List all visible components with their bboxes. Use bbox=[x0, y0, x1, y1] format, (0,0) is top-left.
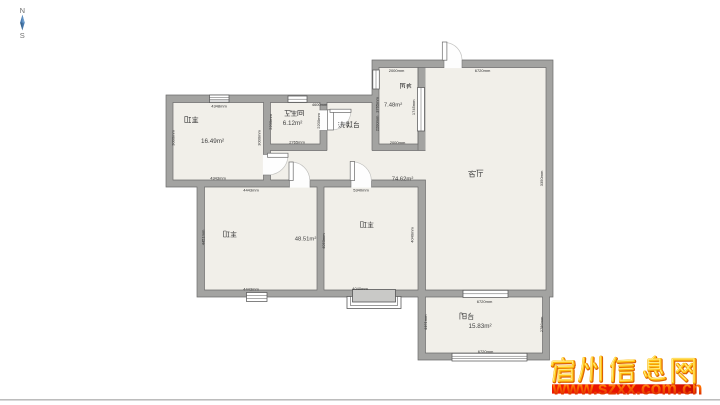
svg-text:4348mm: 4348mm bbox=[211, 103, 227, 108]
svg-text:74.62m²: 74.62m² bbox=[392, 177, 414, 183]
svg-text:6720mm: 6720mm bbox=[477, 299, 493, 304]
svg-text:3765mm: 3765mm bbox=[374, 97, 379, 113]
svg-text:2765mm: 2765mm bbox=[289, 140, 305, 145]
svg-text:4050mm: 4050mm bbox=[321, 233, 326, 249]
svg-text:4461mm: 4461mm bbox=[423, 314, 428, 330]
svg-text:2000mm: 2000mm bbox=[389, 68, 405, 73]
svg-text:5340mm: 5340mm bbox=[353, 188, 369, 193]
svg-text:48.51m²: 48.51m² bbox=[295, 236, 317, 242]
svg-text:2786mm: 2786mm bbox=[539, 316, 544, 332]
svg-text:4040mm: 4040mm bbox=[410, 227, 415, 243]
svg-text:www.szxx.com.cn: www.szxx.com.cn bbox=[552, 378, 703, 398]
svg-text:16.49m²: 16.49m² bbox=[201, 138, 224, 145]
svg-text:1745mm: 1745mm bbox=[411, 99, 416, 115]
svg-text:3000mm: 3000mm bbox=[171, 130, 176, 146]
svg-text:3000mm: 3000mm bbox=[257, 130, 262, 146]
svg-text:3350mm: 3350mm bbox=[539, 170, 544, 186]
svg-text:4443mm: 4443mm bbox=[243, 188, 259, 193]
svg-text:7.48m²: 7.48m² bbox=[384, 102, 402, 108]
svg-text:S: S bbox=[20, 31, 25, 40]
svg-text:15.83m²: 15.83m² bbox=[468, 323, 491, 330]
svg-text:4600mm: 4600mm bbox=[312, 102, 327, 107]
svg-text:6.12m²: 6.12m² bbox=[283, 120, 303, 127]
svg-text:4451mm: 4451mm bbox=[200, 229, 205, 245]
svg-text:6720mm: 6720mm bbox=[478, 349, 494, 354]
svg-text:2000mm: 2000mm bbox=[390, 140, 406, 145]
svg-text:4343mm: 4343mm bbox=[210, 175, 226, 180]
svg-text:4443mm: 4443mm bbox=[243, 287, 259, 292]
svg-text:2200mm: 2200mm bbox=[316, 113, 321, 129]
svg-text:4040mm: 4040mm bbox=[352, 286, 368, 291]
svg-text:2200mm: 2200mm bbox=[374, 115, 379, 131]
svg-text:2200mm: 2200mm bbox=[268, 114, 273, 130]
svg-text:6720mm: 6720mm bbox=[475, 68, 491, 73]
svg-text:N: N bbox=[20, 6, 25, 15]
